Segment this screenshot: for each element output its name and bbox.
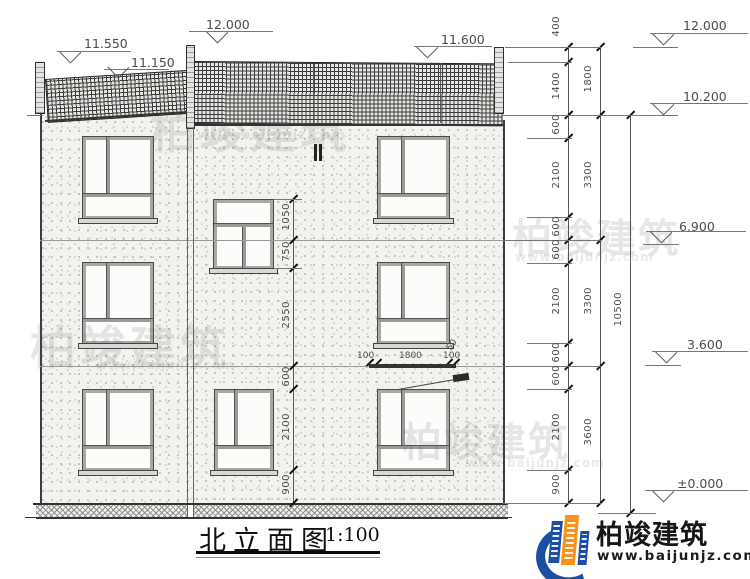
window-mullion — [401, 137, 405, 193]
dim-1400: 1400 — [551, 72, 562, 99]
dim-600: 600 — [551, 216, 562, 237]
dim-2100: 2100 — [551, 413, 562, 440]
window-sill — [373, 470, 454, 476]
dim-1800: 1800 — [583, 65, 594, 92]
window-rail — [83, 445, 153, 449]
window-mullion — [401, 263, 405, 318]
window-sill — [373, 343, 454, 349]
extension-line — [505, 47, 601, 48]
elev-label-11150: 11.150 — [131, 55, 175, 70]
drawing-scale: 1:100 — [325, 524, 380, 546]
dim-3600: 3600 — [583, 418, 594, 445]
window-mullion — [106, 137, 110, 193]
watermark-url: www.baijunjz.com — [96, 358, 235, 372]
dim-canopy-1800: 1800 — [399, 352, 422, 361]
dim-2100: 2100 — [551, 161, 562, 188]
window-rail — [378, 193, 449, 197]
window — [214, 389, 274, 472]
title-underline-thick — [196, 551, 380, 554]
dim-400: 400 — [551, 16, 562, 37]
stairwell-window — [213, 199, 274, 270]
extension-line — [527, 217, 572, 218]
brand-logo-icon — [537, 511, 595, 575]
dim-mid-900: 900 — [281, 474, 292, 495]
parapet-post-middle — [186, 45, 195, 129]
dim-mid-750: 750 — [281, 241, 292, 262]
elev-level-line — [633, 47, 678, 48]
extension-line — [274, 199, 302, 200]
parapet-post-left — [35, 62, 45, 114]
level-line-6900 — [40, 240, 503, 241]
elev-label-3600: 3.600 — [687, 337, 723, 352]
roof-tiles-right — [193, 61, 503, 126]
window-sill — [78, 343, 158, 349]
extension-line — [527, 343, 572, 344]
elev-triangle-icon — [652, 104, 674, 116]
window-sill — [78, 470, 158, 476]
extension-line — [527, 470, 572, 471]
window-mullion — [106, 263, 110, 318]
window-rail — [215, 445, 273, 449]
dim-600: 600 — [551, 365, 562, 386]
extension-line — [527, 389, 572, 390]
dimension-chain-middle — [293, 199, 294, 503]
dim-2100: 2100 — [551, 287, 562, 314]
vent-mark — [319, 144, 322, 161]
dim-3300: 3300 — [583, 161, 594, 188]
extension-line — [508, 62, 572, 63]
section-joint-line — [187, 127, 188, 517]
dim-mid-2100: 2100 — [281, 413, 292, 440]
window-sill — [210, 470, 278, 476]
window-rail — [214, 223, 273, 227]
roof-seam — [313, 64, 314, 124]
elev-level-line — [643, 244, 679, 245]
dim-900: 900 — [551, 474, 562, 495]
dim-mid-1050: 1050 — [281, 203, 292, 230]
extension-line — [27, 115, 43, 116]
roof-seam — [440, 63, 441, 123]
elev-triangle-icon — [652, 491, 674, 503]
window — [82, 389, 154, 472]
window-mullion — [242, 226, 246, 269]
dim-canopy-100-right: 100 — [443, 352, 460, 361]
elev-label-12000: 12.000 — [683, 18, 727, 33]
dim-600: 600 — [551, 239, 562, 260]
dim-mid-2550: 2550 — [281, 301, 292, 328]
extension-line — [503, 503, 601, 504]
elev-label-11550: 11.550 — [84, 36, 128, 51]
window-mullion — [106, 390, 110, 445]
elev-triangle-icon — [652, 34, 674, 46]
parapet-post-right — [494, 47, 504, 114]
title-underline-thin — [196, 557, 380, 558]
window — [377, 262, 450, 345]
section-joint-line — [193, 127, 194, 517]
extension-line — [527, 263, 572, 264]
brand-name: 柏竣建筑 — [596, 513, 708, 552]
window-rail — [83, 193, 153, 197]
elev-label-11600: 11.600 — [441, 32, 485, 47]
zero-level-line — [33, 503, 508, 505]
elev-triangle-icon — [107, 67, 129, 79]
ground-line — [25, 517, 512, 518]
watermark-url: www.baijunjz.com — [466, 456, 605, 470]
elev-label-0000: ±0.000 — [677, 476, 723, 491]
elev-label-12000-top: 12.000 — [206, 17, 250, 32]
window — [82, 136, 154, 220]
dim-600: 600 — [551, 342, 562, 363]
window — [377, 136, 450, 220]
extension-line — [274, 268, 302, 269]
elev-level-line — [645, 365, 681, 366]
elev-triangle-icon — [655, 352, 677, 364]
dim-10500: 10500 — [613, 292, 624, 326]
elev-triangle-icon — [650, 232, 672, 244]
dim-mid-600: 600 — [281, 366, 292, 387]
elev-triangle-icon — [206, 32, 228, 44]
dim-canopy-100-left: 100 — [357, 352, 374, 361]
vent-mark — [314, 144, 317, 161]
eave-line-right — [187, 124, 503, 126]
dimension-chain-overall — [630, 115, 631, 513]
dim-600: 600 — [551, 114, 562, 135]
watermark-url: www.baijunjz.com — [197, 128, 346, 143]
elevation-drawing-canvas: 柏竣建筑 www.baijunjz.com 柏竣建筑 www.baijunjz.… — [0, 0, 750, 579]
window-rail — [378, 318, 449, 322]
elev-label-6900: 6.900 — [679, 219, 715, 234]
window-mullion — [234, 390, 238, 445]
elev-label-10200: 10.200 — [683, 89, 727, 104]
elev-triangle-icon — [59, 52, 81, 64]
dim-3300: 3300 — [583, 287, 594, 314]
window-sill — [373, 218, 454, 224]
extension-line — [527, 138, 572, 139]
elev-triangle-icon — [416, 47, 438, 59]
watermark-url: www.baijunjz.com — [515, 250, 654, 264]
window-sill — [78, 218, 158, 224]
brand-url: www.baijunjz.com — [597, 548, 750, 564]
canopy-slab — [369, 364, 456, 368]
window-sill — [209, 268, 278, 274]
